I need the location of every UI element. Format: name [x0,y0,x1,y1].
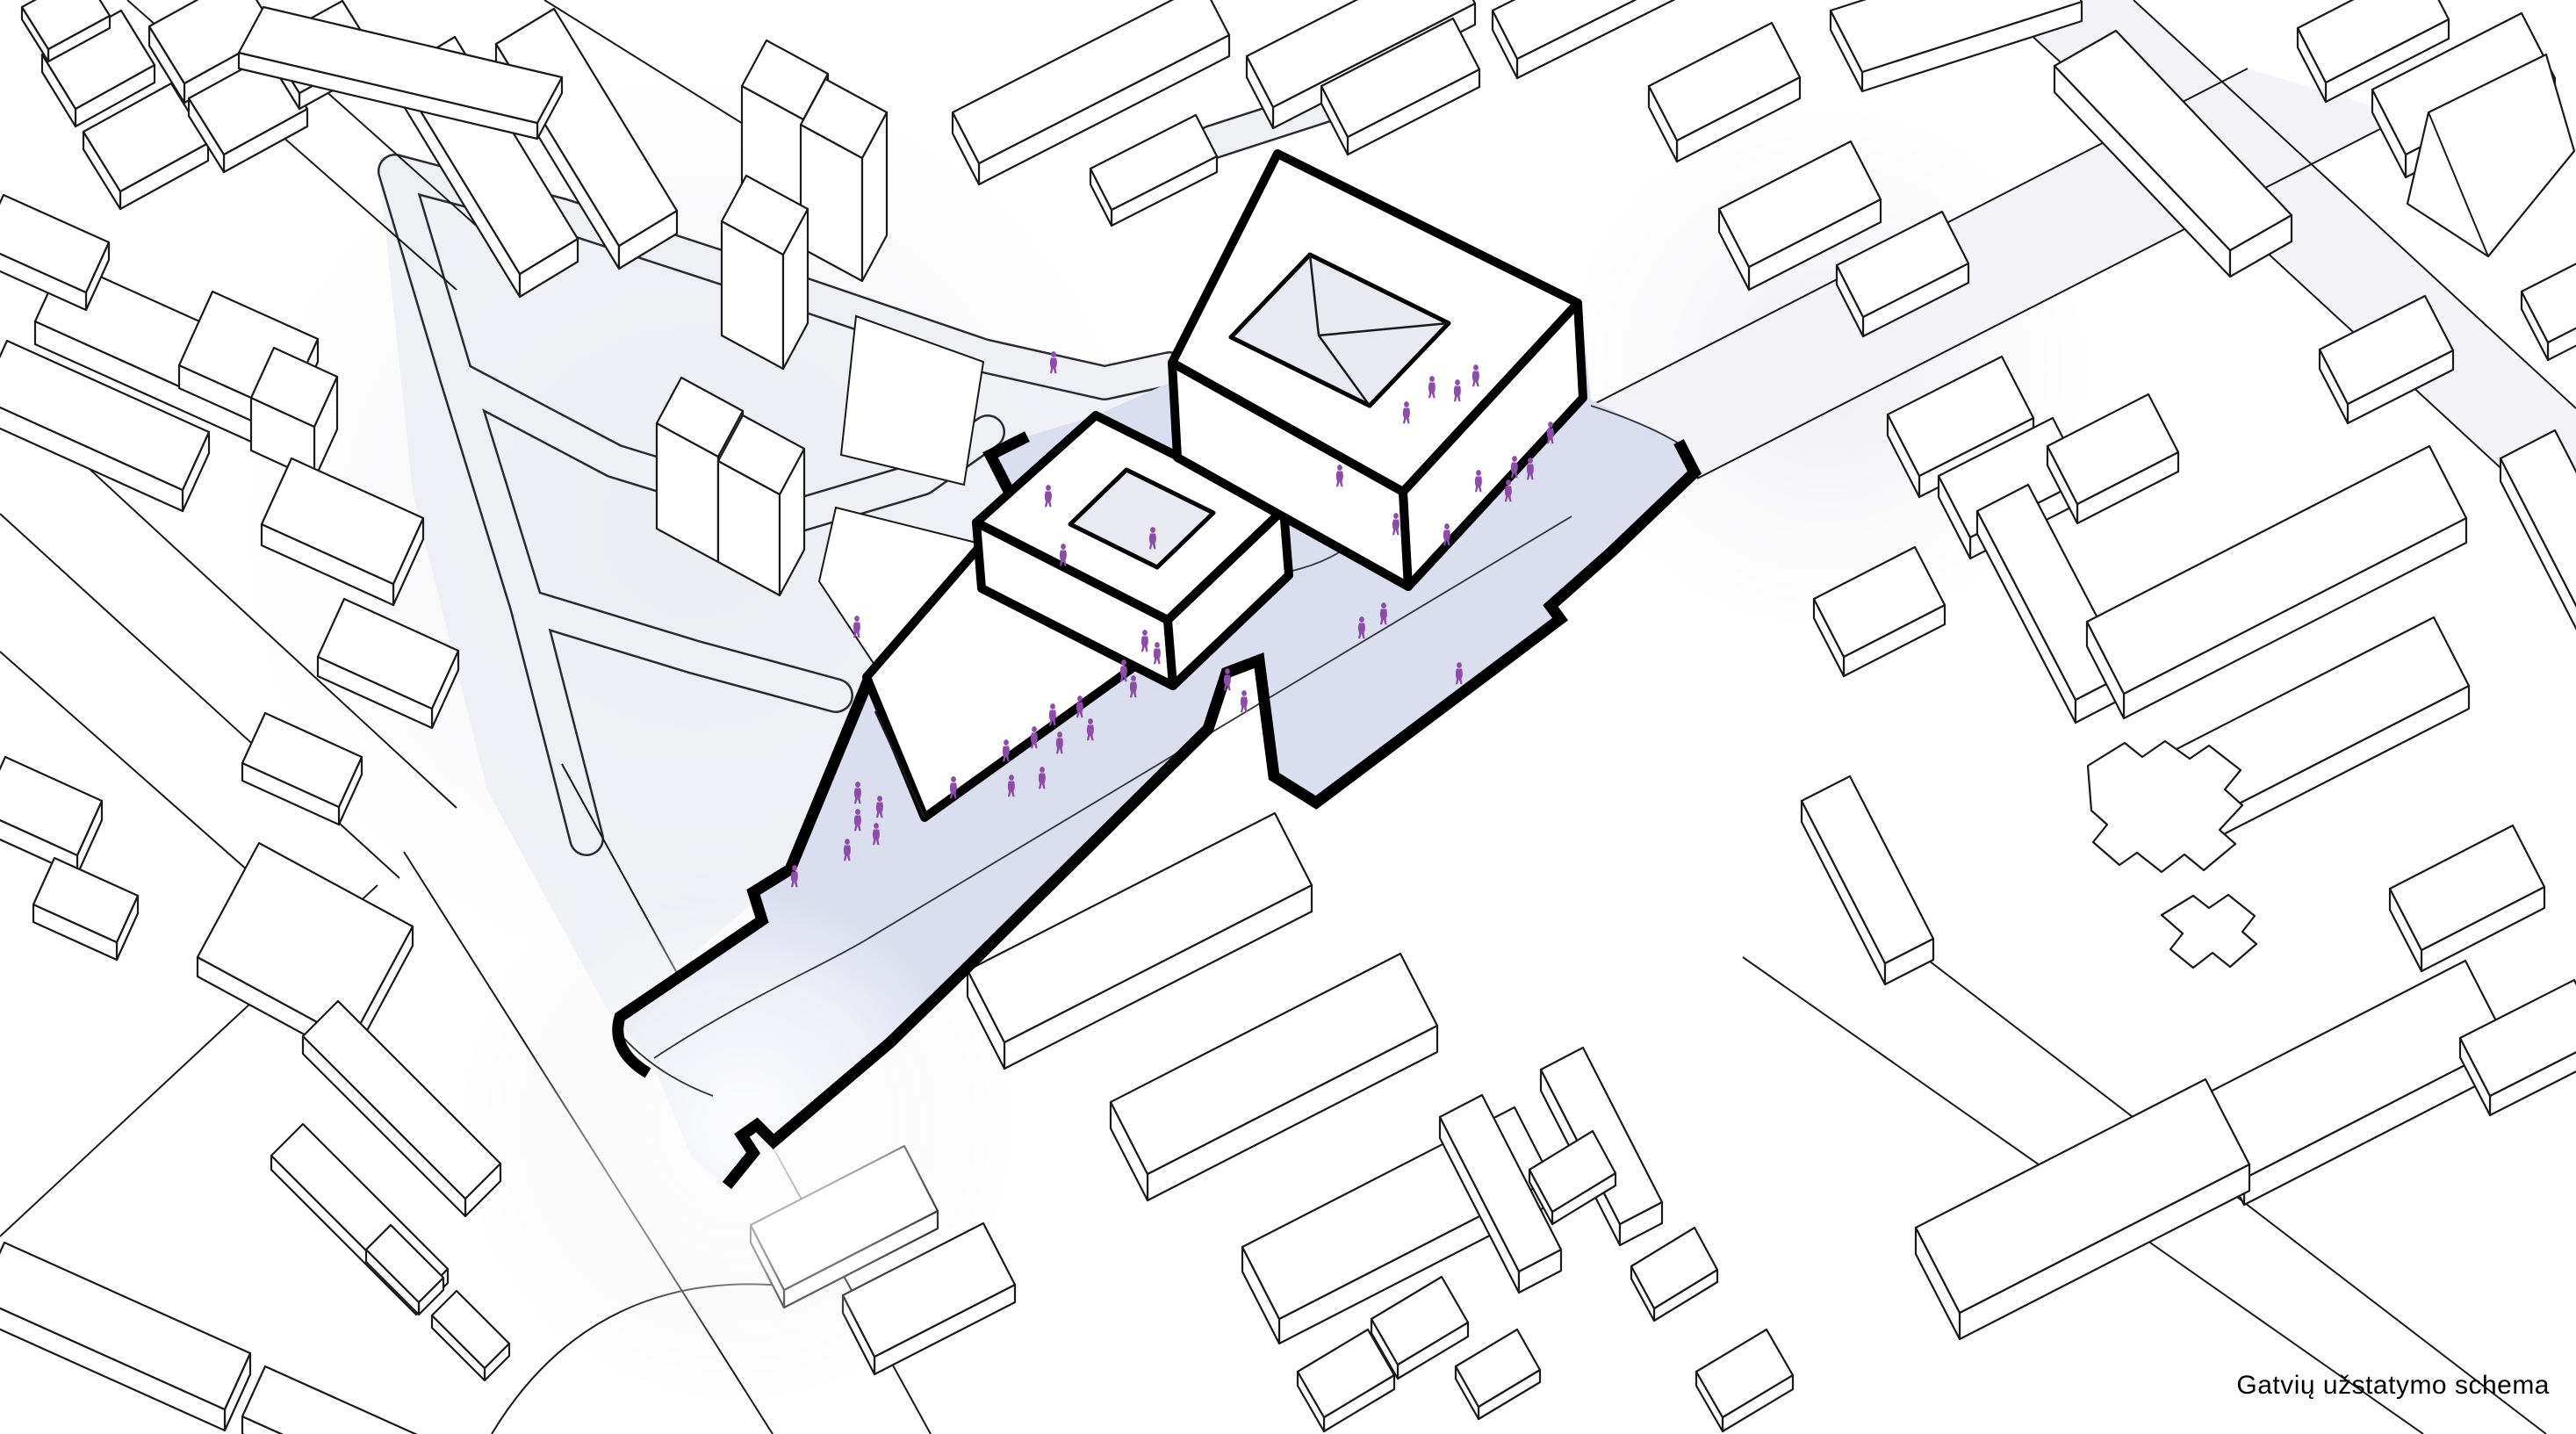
caption: Gatvių užstatymo schema [2236,1371,2550,1401]
context-building [242,1366,423,1434]
site-plan-drawing [0,0,2576,1434]
ornate-building [2162,895,2256,968]
context-building [198,843,413,1041]
ornate-building [2088,741,2242,872]
site-scheme-page: Gatvių užstatymo schema [0,0,2576,1434]
pedestrian-figure [1241,690,1248,712]
context-building [2522,247,2576,342]
